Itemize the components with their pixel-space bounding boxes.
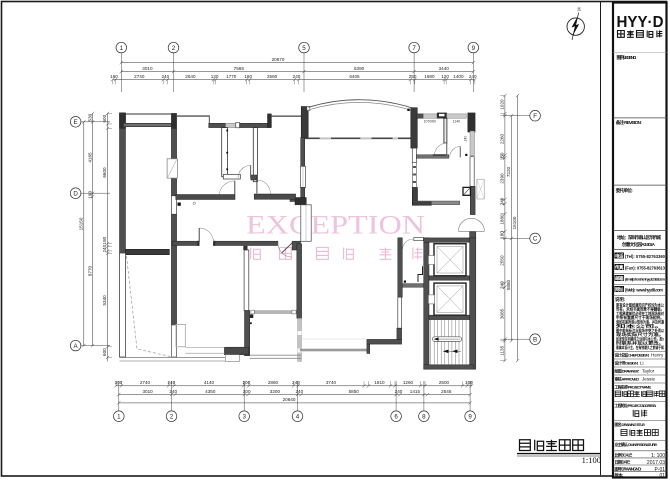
svg-text:Henry: Henry — [651, 353, 664, 358]
svg-text:3085: 3085 — [500, 308, 505, 319]
svg-text:2560: 2560 — [267, 74, 278, 79]
svg-text:1070/60: 1070/60 — [424, 120, 436, 124]
svg-text:3010: 3010 — [142, 66, 153, 71]
svg-text:240: 240 — [169, 389, 177, 394]
svg-text:7: 7 — [412, 45, 416, 52]
svg-text:2860: 2860 — [268, 380, 279, 385]
svg-text:250: 250 — [409, 74, 417, 79]
svg-text:创意文化园A3-301A: 创意文化园A3-301A — [621, 241, 656, 248]
svg-text:1135: 1135 — [500, 345, 505, 355]
svg-text:5850: 5850 — [349, 389, 360, 394]
svg-text:180: 180 — [244, 74, 252, 79]
svg-text:1880: 1880 — [500, 214, 505, 225]
svg-text:15100: 15100 — [512, 216, 517, 229]
svg-text:设计总监 CHIEF DESIGN:: 设计总监 CHIEF DESIGN: — [615, 352, 650, 358]
svg-text:6390: 6390 — [354, 66, 365, 71]
svg-text:2640: 2640 — [185, 74, 196, 79]
svg-text:9: 9 — [468, 414, 472, 421]
svg-text:(Tel): 0755-82763360: (Tel): 0755-82763360 — [625, 254, 666, 259]
svg-text:EXCEPTION: EXCEPTION — [246, 211, 425, 240]
svg-text:240: 240 — [500, 197, 505, 205]
svg-text:2545: 2545 — [441, 389, 452, 394]
svg-text:7220: 7220 — [506, 166, 511, 177]
svg-text:1770: 1770 — [226, 74, 237, 79]
svg-text:1: 1 — [120, 45, 124, 52]
svg-text:8770: 8770 — [87, 265, 92, 276]
svg-text:160: 160 — [110, 74, 118, 79]
svg-text:B: B — [533, 337, 537, 344]
svg-text:8: 8 — [422, 414, 426, 421]
svg-text:北: 北 — [577, 6, 581, 12]
svg-text:1: 1 — [117, 414, 121, 421]
svg-text:5: 5 — [302, 45, 306, 52]
svg-text:4350: 4350 — [205, 389, 216, 394]
svg-text:(Web): www.hyyd8.com: (Web): www.hyyd8.com — [625, 288, 663, 293]
svg-text:600: 600 — [102, 114, 107, 122]
svg-text:5880: 5880 — [506, 279, 511, 290]
svg-text:240: 240 — [469, 74, 477, 79]
svg-text:E: E — [74, 119, 78, 126]
svg-text:网址: 网址 — [615, 286, 624, 293]
svg-text:日期 DATE:: 日期 DATE: — [615, 459, 631, 466]
svg-text:传真: 传真 — [614, 264, 624, 271]
svg-text:240: 240 — [295, 389, 303, 394]
svg-text:2500: 2500 — [439, 380, 450, 385]
svg-text:1020: 1020 — [500, 99, 505, 110]
svg-text:工程地址 PROJECT ADDRESS:: 工程地址 PROJECT ADDRESS: — [615, 402, 657, 408]
svg-text:2740: 2740 — [140, 380, 151, 385]
svg-text:电话: 电话 — [615, 253, 624, 260]
svg-text:530: 530 — [87, 113, 92, 121]
svg-text:F: F — [533, 113, 537, 120]
svg-text:业主确认 OWNER SIGNATURE:: 业主确认 OWNER SIGNATURE: — [615, 441, 658, 447]
svg-text:240: 240 — [161, 74, 169, 79]
svg-text:1400: 1400 — [453, 74, 464, 79]
svg-text:2: 2 — [170, 414, 174, 421]
svg-text:240: 240 — [293, 74, 301, 79]
svg-text:180: 180 — [102, 236, 107, 244]
svg-text:2740: 2740 — [134, 74, 145, 79]
svg-text:3740: 3740 — [326, 380, 337, 385]
svg-text:2: 2 — [172, 45, 176, 52]
svg-text:01: 01 — [659, 473, 665, 479]
svg-text:审核 APPROVED:: 审核 APPROVED: — [615, 376, 640, 382]
svg-text:4165: 4165 — [87, 152, 92, 163]
svg-text:7565: 7565 — [234, 66, 245, 71]
svg-text:3010: 3010 — [142, 389, 153, 394]
svg-text:3440: 3440 — [439, 66, 450, 71]
svg-text:6405: 6405 — [349, 74, 360, 79]
svg-text:4: 4 — [296, 414, 300, 421]
svg-text:比例 SCALE:: 比例 SCALE: — [615, 452, 633, 459]
svg-text:图例 LEGEND:: 图例 LEGEND: — [617, 54, 637, 61]
svg-text:20640: 20640 — [283, 397, 296, 402]
svg-text:(Fax): 0755-82763613: (Fax): 0755-82763613 — [625, 266, 666, 271]
svg-text:2390: 2390 — [500, 173, 505, 184]
svg-text:1260: 1260 — [403, 380, 414, 385]
svg-text:D: D — [73, 191, 78, 198]
svg-text:190: 190 — [87, 191, 92, 199]
svg-text:15150: 15150 — [78, 217, 83, 230]
svg-text:240: 240 — [463, 136, 467, 142]
svg-text:1415: 1415 — [410, 389, 421, 394]
svg-text:版本:: 版本: — [615, 472, 624, 479]
svg-text:Taylor: Taylor — [642, 369, 655, 374]
svg-text:180: 180 — [500, 231, 505, 239]
svg-text:6: 6 — [394, 414, 398, 421]
svg-text:240: 240 — [395, 389, 403, 394]
svg-text:委托单位:: 委托单位: — [616, 187, 633, 194]
svg-text:100: 100 — [465, 380, 473, 385]
svg-text:4140: 4140 — [204, 380, 215, 385]
svg-text:(Email): shenzhenhyyd@163.com: (Email): shenzhenhyyd@163.com — [625, 277, 666, 282]
svg-text:工程名称 PROJECT NAME:: 工程名称 PROJECT NAME: — [615, 384, 652, 390]
svg-text:20670: 20670 — [272, 57, 285, 62]
svg-text:120: 120 — [441, 74, 449, 79]
svg-text:备注 REVISION:: 备注 REVISION: — [615, 119, 642, 126]
svg-text:绘图 DRAWN BY:: 绘图 DRAWN BY: — [615, 368, 640, 374]
svg-text:HYY·D: HYY·D — [617, 14, 664, 31]
svg-text:邮箱: 邮箱 — [615, 275, 624, 282]
svg-text:1810: 1810 — [374, 380, 385, 385]
svg-text:130: 130 — [211, 74, 219, 79]
svg-text:地址：深圳市南山区华侨城: 地址：深圳市南山区华侨城 — [617, 234, 661, 241]
svg-text:事属本设计主，在有效期久之前请于知: 事属本设计主，在有效期久之前请于知 — [616, 345, 664, 350]
svg-text:设计师 DESIGN:: 设计师 DESIGN: — [615, 360, 639, 366]
svg-text:1680: 1680 — [424, 74, 435, 79]
svg-text:3: 3 — [242, 414, 246, 421]
svg-text:240: 240 — [500, 281, 505, 289]
svg-text:Jessie: Jessie — [642, 377, 655, 382]
svg-text:2550: 2550 — [500, 255, 505, 266]
svg-text:2260: 2260 — [500, 133, 505, 144]
svg-text:1:100: 1:100 — [582, 455, 601, 465]
svg-text:9: 9 — [472, 45, 476, 52]
svg-text:600: 600 — [102, 348, 107, 356]
svg-text:200: 200 — [243, 389, 251, 394]
svg-text:6600: 6600 — [102, 167, 107, 178]
svg-text:150: 150 — [500, 152, 505, 160]
svg-text:Li: Li — [640, 361, 644, 366]
svg-text:C: C — [533, 236, 538, 243]
svg-text:5340: 5340 — [102, 295, 107, 306]
svg-text:3200: 3200 — [270, 389, 281, 394]
svg-text:1140: 1140 — [453, 120, 461, 124]
svg-text:240: 240 — [102, 244, 107, 252]
svg-text:图名 DRAWING TITLE:: 图名 DRAWING TITLE: — [615, 421, 646, 427]
